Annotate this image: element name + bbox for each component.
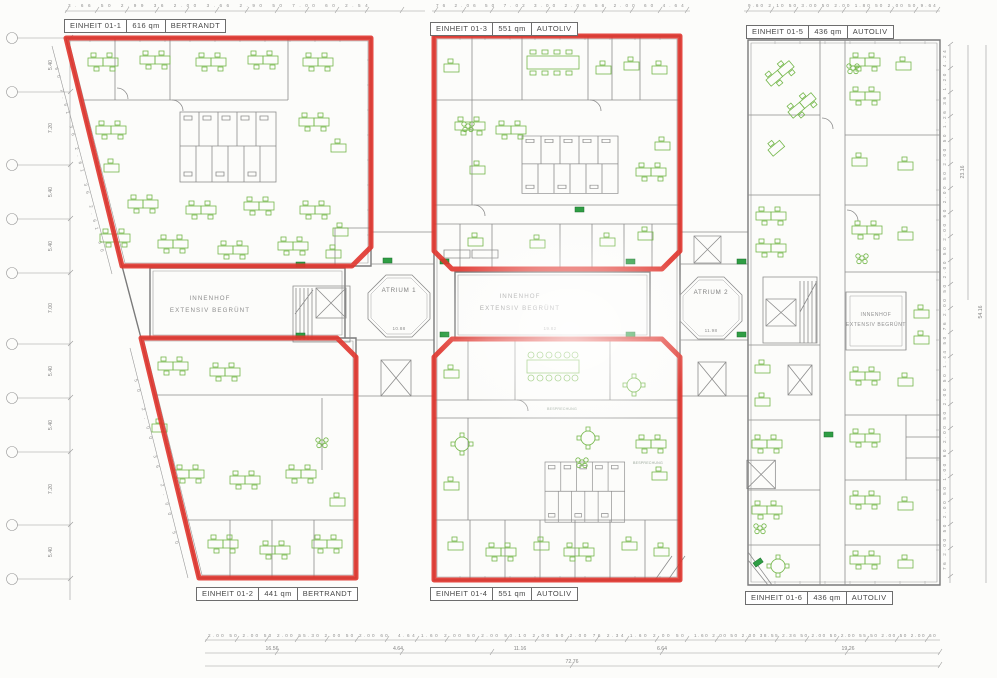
door-arc: [172, 100, 183, 111]
unit-id: EINHEIT 01-3: [430, 22, 493, 36]
unit-tenant: BERTRANDT: [166, 19, 226, 33]
elevator-shaft: [766, 299, 796, 326]
unit-tenant: AUTOLIV: [532, 22, 578, 36]
unit-label-01-3: EINHEIT 01-3551 qmAUTOLIV: [430, 22, 578, 36]
courtyard-left-line1: INNENHOF: [189, 295, 230, 302]
elevator-shaft: [316, 288, 346, 318]
wc-core-unit3: [522, 136, 618, 193]
unit-tenant: AUTOLIV: [532, 587, 578, 601]
left-dim-4: 5.40: [48, 241, 54, 251]
floorplan-page: 3.66 50 2.99 36 2.00 3.66 2.90 50 7.00 6…: [0, 0, 997, 678]
door-arc: [822, 118, 833, 129]
top-ruler-numbers-left: 3.66 50 2.99 36 2.00 3.66 2.90 50 7.00 6…: [68, 3, 368, 8]
unit-area: 551 qm: [493, 22, 531, 36]
bottom-ruler-c: 1.60 2.00 50 2.00 38.55 2.36 50 2.00 50 …: [694, 633, 936, 638]
bottom-seg-1: 16.56: [266, 646, 279, 652]
elevator-shaft: [694, 236, 721, 263]
unit-id: EINHEIT 01-4: [430, 587, 493, 601]
courtyard-mid-line2: EXTENSIV BEGRÜNT: [480, 305, 560, 312]
unit-area: 436 qm: [808, 591, 846, 605]
left-dim-3: 5.40: [48, 187, 54, 197]
meeting-room-label-1: BESPRECHUNG: [547, 407, 577, 411]
bottom-seg-4: 6.64: [657, 646, 667, 652]
atrium2-dim: 11.98: [705, 328, 718, 333]
unit-area: 441 qm: [259, 587, 297, 601]
unit-tenant: BERTRANDT: [298, 587, 358, 601]
bottom-seg-3: 11.16: [514, 646, 527, 652]
left-dim-7: 5.40: [48, 420, 54, 430]
unit-label-01-1: EINHEIT 01-1616 qmBERTRANDT: [64, 19, 226, 33]
exit-signs: [296, 207, 833, 567]
top-ruler-numbers-mid: 76 2.06 50 7.02 3.00 2.06 56 2.00 60 4.6…: [436, 3, 684, 8]
connector-right: ATRIUM 2 11.98: [680, 232, 748, 396]
wc-core-unit4: [545, 462, 625, 522]
bottom-ruler-b: 4.64 1.60 2.00 50 2.00 50.10 2.00 50 2.0…: [398, 633, 684, 638]
left-dim-5: 7.00: [48, 303, 54, 313]
atrium1-label: ATRIUM 1: [382, 287, 417, 294]
bottom-seg-2: 4.64: [393, 646, 403, 652]
door-arc: [474, 205, 485, 216]
left-dim-6: 5.40: [48, 366, 54, 376]
right-inner-total: 23.16: [960, 165, 966, 178]
right-ruler-numbers: 76 2.00 50 2.00 50 1.00 60 2.00 50 2.00 …: [942, 50, 947, 570]
door-arc: [117, 88, 128, 99]
unit-label-01-4: EINHEIT 01-4551 qmAUTOLIV: [430, 587, 578, 601]
bottom-ruler-a: 2.00 50 2.00 50 2.00 55.30 2.00 50 2.00 …: [208, 633, 388, 638]
door-arc: [590, 100, 601, 111]
bottom-total: 72.76: [566, 659, 579, 665]
unit-label-01-5: EINHEIT 01-5436 qmAUTOLIV: [746, 25, 894, 39]
red-unit-outlines: [66, 36, 680, 580]
top-ruler-numbers-right: 9.60 2.10 50 3.00 50 2.00 1.80 50 2.00 5…: [748, 3, 936, 8]
unit-tenant: AUTOLIV: [847, 591, 893, 605]
bottom-seg-5: 19.26: [842, 646, 855, 652]
unit-id: EINHEIT 01-2: [196, 587, 259, 601]
unit-area: 436 qm: [809, 25, 847, 39]
left-dim-9: 5.40: [48, 547, 54, 557]
grid-bubbles: [7, 33, 71, 585]
courtyard-right-line2: EXTENSIV BEGRÜNT: [846, 321, 906, 328]
atrium2-label: ATRIUM 2: [694, 289, 729, 296]
unit-id: EINHEIT 01-1: [64, 19, 127, 33]
left-dim-1: 5.40: [48, 60, 54, 70]
unit-id: EINHEIT 01-5: [746, 25, 809, 39]
courtyard-left-line2: EXTENSIV BEGRÜNT: [170, 307, 250, 314]
right-overall-total: 54.16: [978, 305, 984, 318]
unit-01-1-outline: [66, 38, 371, 266]
left-dim-8: 7.20: [48, 484, 54, 494]
courtyard-mid-line1: INNENHOF: [499, 293, 540, 300]
meeting-room-label-2: BESPRECHUNG: [633, 461, 663, 465]
left-dim-2: 7.20: [48, 123, 54, 133]
building-right: [748, 40, 940, 585]
atrium1-dim: 10.88: [393, 326, 406, 331]
unit-id: EINHEIT 01-6: [745, 591, 808, 605]
unit-label-01-6: EINHEIT 01-6436 qmAUTOLIV: [745, 591, 893, 605]
unit-area: 551 qm: [493, 587, 531, 601]
door-arc: [847, 210, 858, 221]
wc-core-unit1: [180, 112, 276, 182]
door-arc: [517, 400, 528, 411]
floor-plan-svg: 3.66 50 2.99 36 2.00 3.66 2.90 50 7.00 6…: [0, 0, 997, 678]
unit-area: 616 qm: [127, 19, 165, 33]
courtyard-mid-dim: 19.82: [544, 326, 557, 331]
unit-label-01-2: EINHEIT 01-2441 qmBERTRANDT: [196, 587, 358, 601]
courtyard-right-line1: INNENHOF: [861, 312, 892, 318]
unit-tenant: AUTOLIV: [848, 25, 894, 39]
